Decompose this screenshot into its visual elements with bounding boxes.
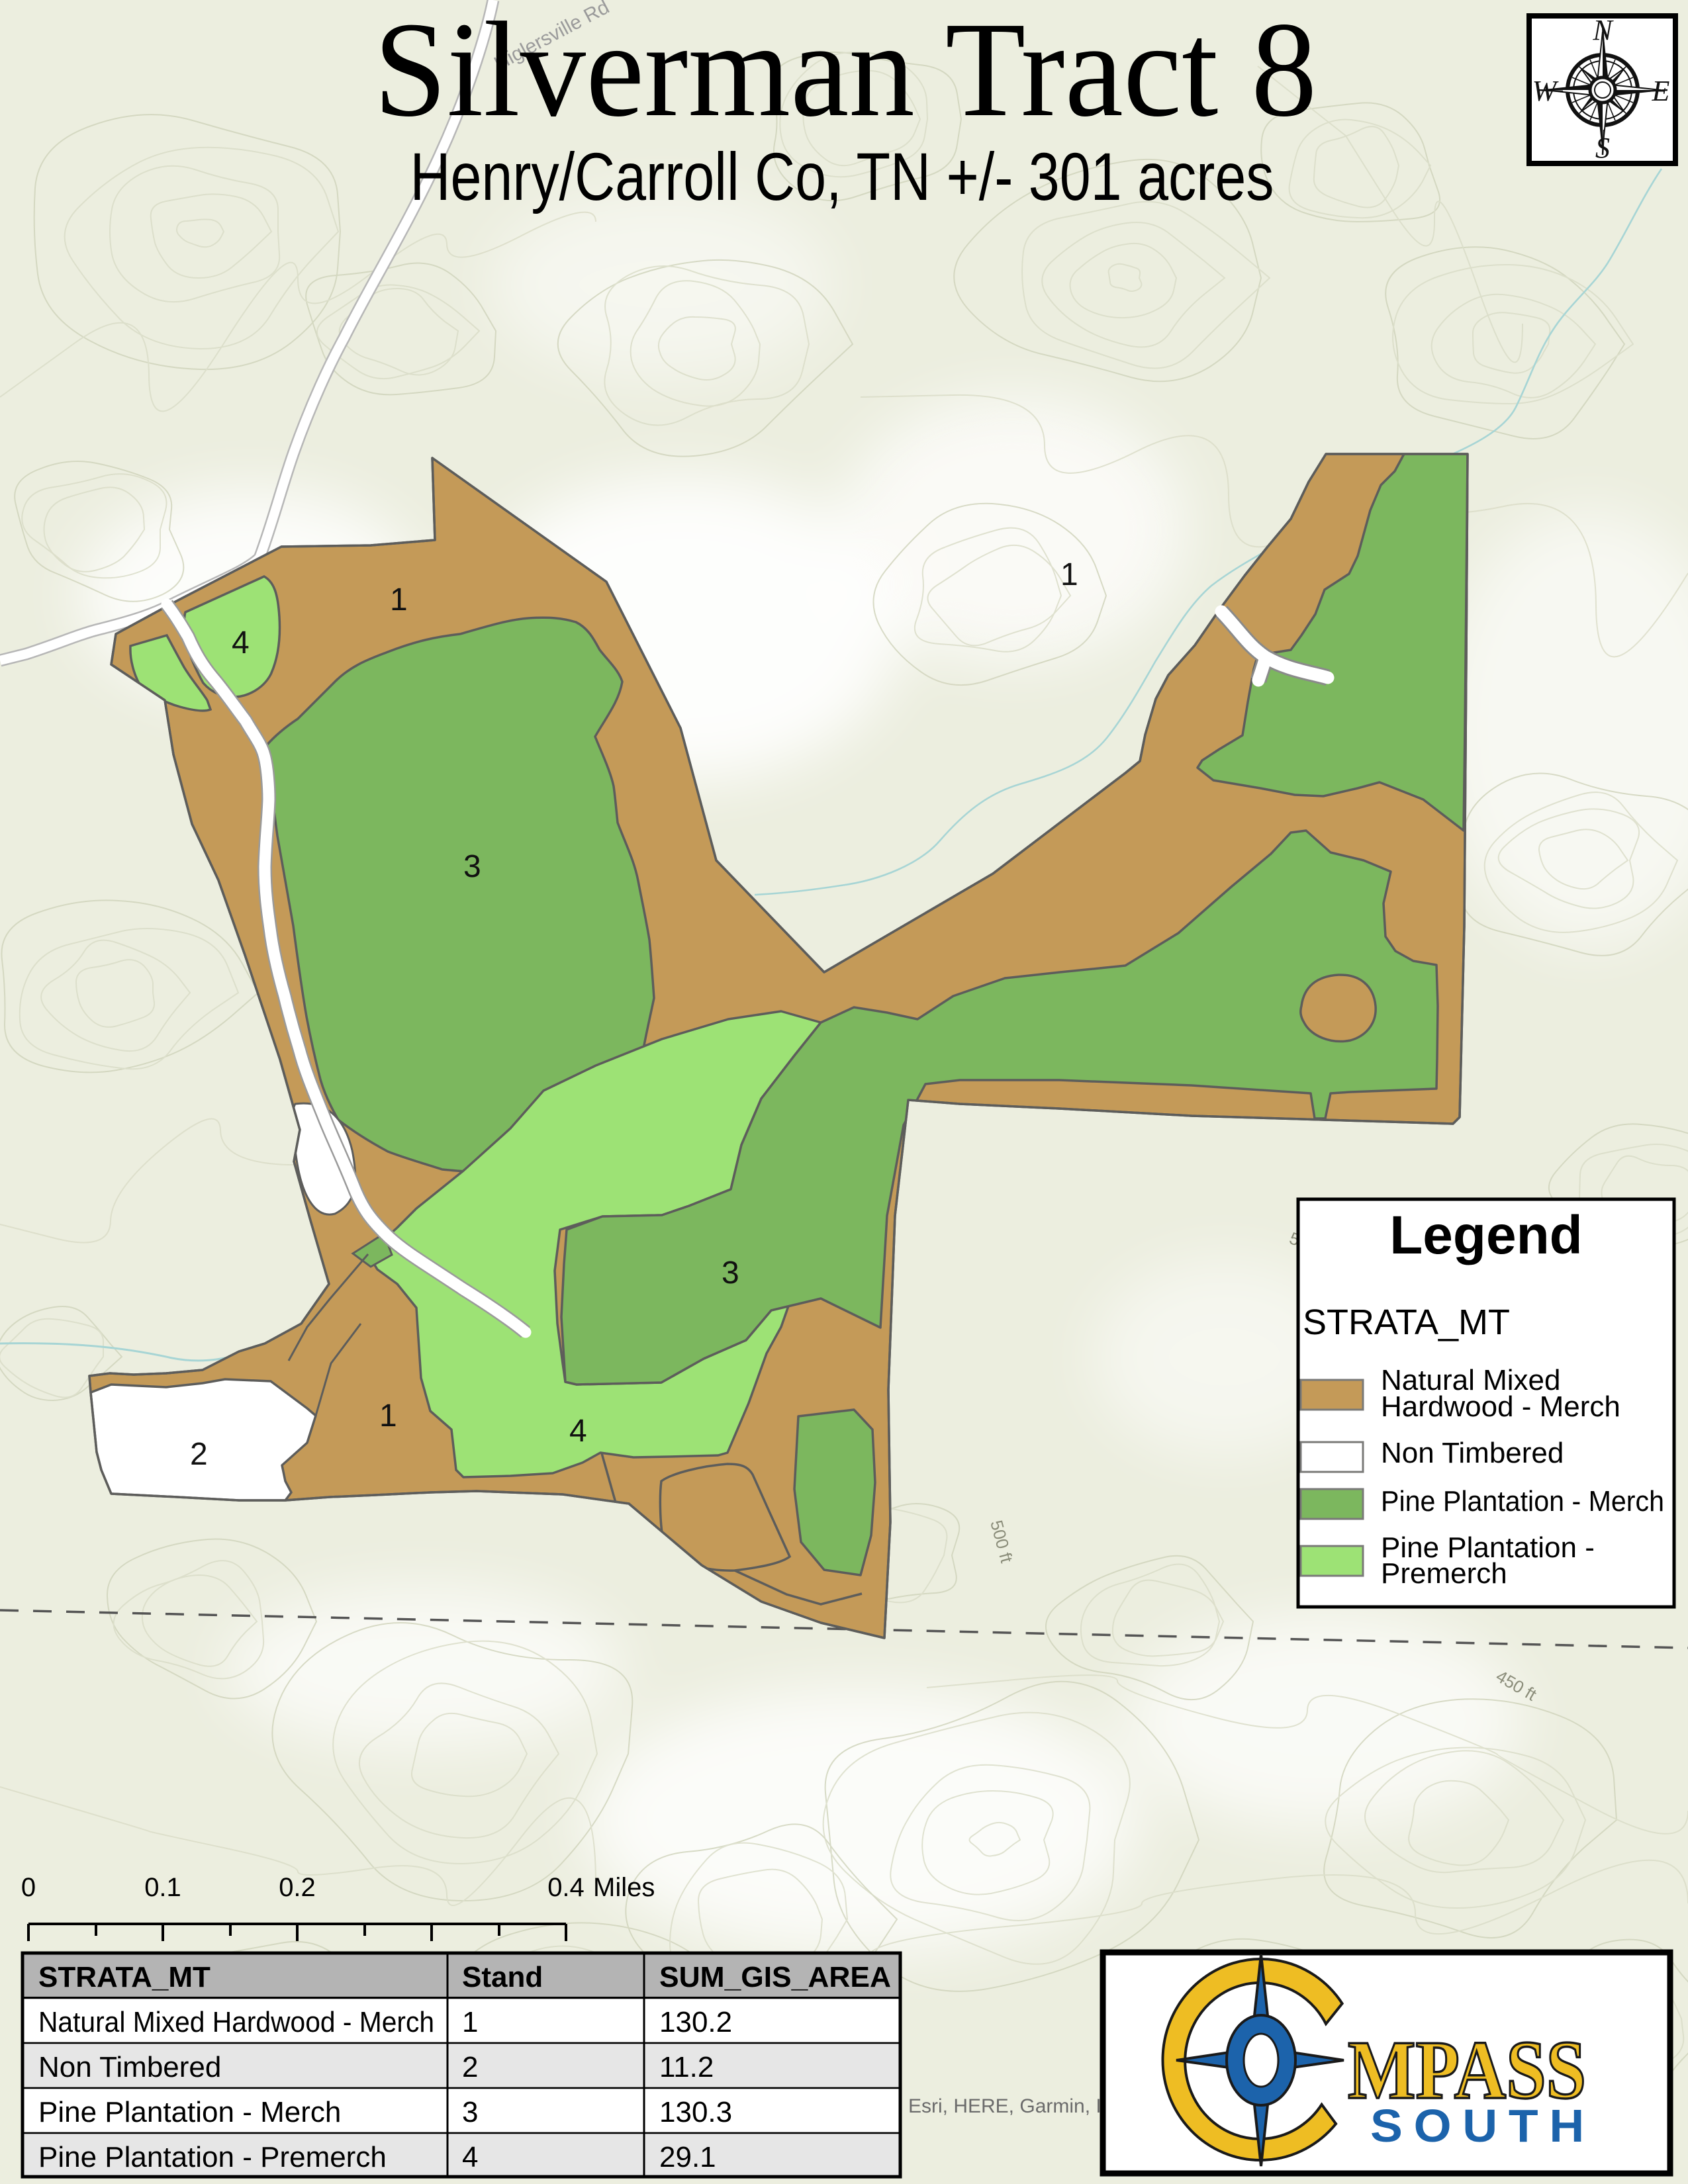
svg-text:N: N bbox=[1592, 14, 1614, 46]
svg-text:4: 4 bbox=[569, 1414, 587, 1449]
svg-text:STRATA_MT: STRATA_MT bbox=[1303, 1302, 1510, 1342]
svg-text:Pine Plantation - Merch: Pine Plantation - Merch bbox=[1381, 1485, 1664, 1518]
svg-text:SOUTH: SOUTH bbox=[1370, 2100, 1595, 2152]
svg-text:Natural Mixed Hardwood - Merch: Natural Mixed Hardwood - Merch bbox=[38, 2006, 434, 2038]
svg-text:Esri, HERE, Garmin, I: Esri, HERE, Garmin, I bbox=[908, 2095, 1102, 2117]
svg-text:Pine Plantation - Merch: Pine Plantation - Merch bbox=[38, 2096, 341, 2128]
svg-text:Silverman Tract 8: Silverman Tract 8 bbox=[374, 0, 1317, 145]
svg-text:11.2: 11.2 bbox=[659, 2051, 714, 2083]
svg-text:STRATA_MT: STRATA_MT bbox=[38, 1961, 211, 1993]
svg-text:2: 2 bbox=[190, 1437, 208, 1472]
svg-text:S: S bbox=[1595, 132, 1610, 164]
svg-text:Stand: Stand bbox=[462, 1961, 543, 1993]
svg-text:4: 4 bbox=[232, 625, 250, 660]
svg-text:29.1: 29.1 bbox=[659, 2141, 716, 2173]
svg-text:Non Timbered: Non Timbered bbox=[38, 2051, 221, 2083]
svg-text:Non Timbered: Non Timbered bbox=[1381, 1437, 1564, 1469]
svg-text:Pine Plantation - Premerch: Pine Plantation - Premerch bbox=[38, 2141, 387, 2173]
svg-text:W: W bbox=[1532, 75, 1559, 107]
svg-text:1: 1 bbox=[379, 1398, 397, 1433]
svg-text:3: 3 bbox=[462, 2096, 478, 2128]
svg-text:4: 4 bbox=[462, 2141, 478, 2173]
svg-text:0: 0 bbox=[21, 1873, 36, 1902]
svg-text:130.3: 130.3 bbox=[659, 2096, 732, 2128]
svg-text:130.2: 130.2 bbox=[659, 2006, 732, 2038]
svg-text:Premerch: Premerch bbox=[1381, 1557, 1507, 1590]
svg-text:0.1: 0.1 bbox=[144, 1873, 181, 1902]
svg-text:Miles: Miles bbox=[593, 1873, 655, 1902]
svg-text:3: 3 bbox=[722, 1255, 739, 1291]
svg-text:Henry/Carroll Co, TN +/- 301 a: Henry/Carroll Co, TN +/- 301 acres bbox=[410, 139, 1274, 214]
svg-text:0.2: 0.2 bbox=[279, 1873, 316, 1902]
svg-text:1: 1 bbox=[462, 2006, 478, 2038]
svg-text:2: 2 bbox=[462, 2051, 478, 2083]
svg-text:0.4: 0.4 bbox=[547, 1873, 585, 1902]
svg-text:3: 3 bbox=[463, 849, 481, 884]
svg-text:E: E bbox=[1652, 75, 1670, 107]
svg-text:SUM_GIS_AREA: SUM_GIS_AREA bbox=[659, 1961, 891, 1993]
svg-text:Legend: Legend bbox=[1389, 1205, 1583, 1265]
svg-text:1: 1 bbox=[1060, 557, 1078, 592]
svg-text:1: 1 bbox=[390, 582, 408, 617]
svg-text:Hardwood - Merch: Hardwood - Merch bbox=[1381, 1390, 1620, 1423]
